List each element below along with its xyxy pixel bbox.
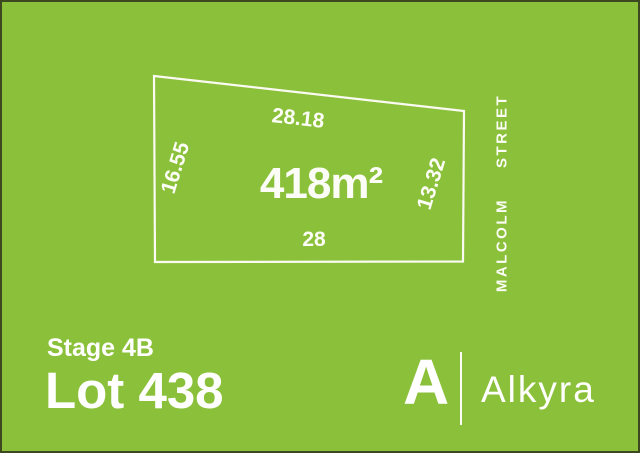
lot-number-label: Lot 438 bbox=[45, 365, 224, 416]
brand-name: Alkyra bbox=[481, 371, 596, 408]
brand-divider-line bbox=[460, 352, 462, 425]
street-label: MALCOLM STREET bbox=[494, 94, 511, 292]
street-name-word: MALCOLM bbox=[494, 198, 511, 292]
stage-label: Stage 4B bbox=[47, 336, 154, 361]
lot-plan-canvas: 28.18 16.55 13.32 28 418m² MALCOLM STREE… bbox=[0, 0, 640, 453]
street-type-word: STREET bbox=[494, 94, 511, 168]
brand-initial-letter: A bbox=[403, 350, 449, 414]
lot-area-label: 418m² bbox=[260, 159, 382, 209]
dimension-bottom: 28 bbox=[302, 228, 325, 252]
